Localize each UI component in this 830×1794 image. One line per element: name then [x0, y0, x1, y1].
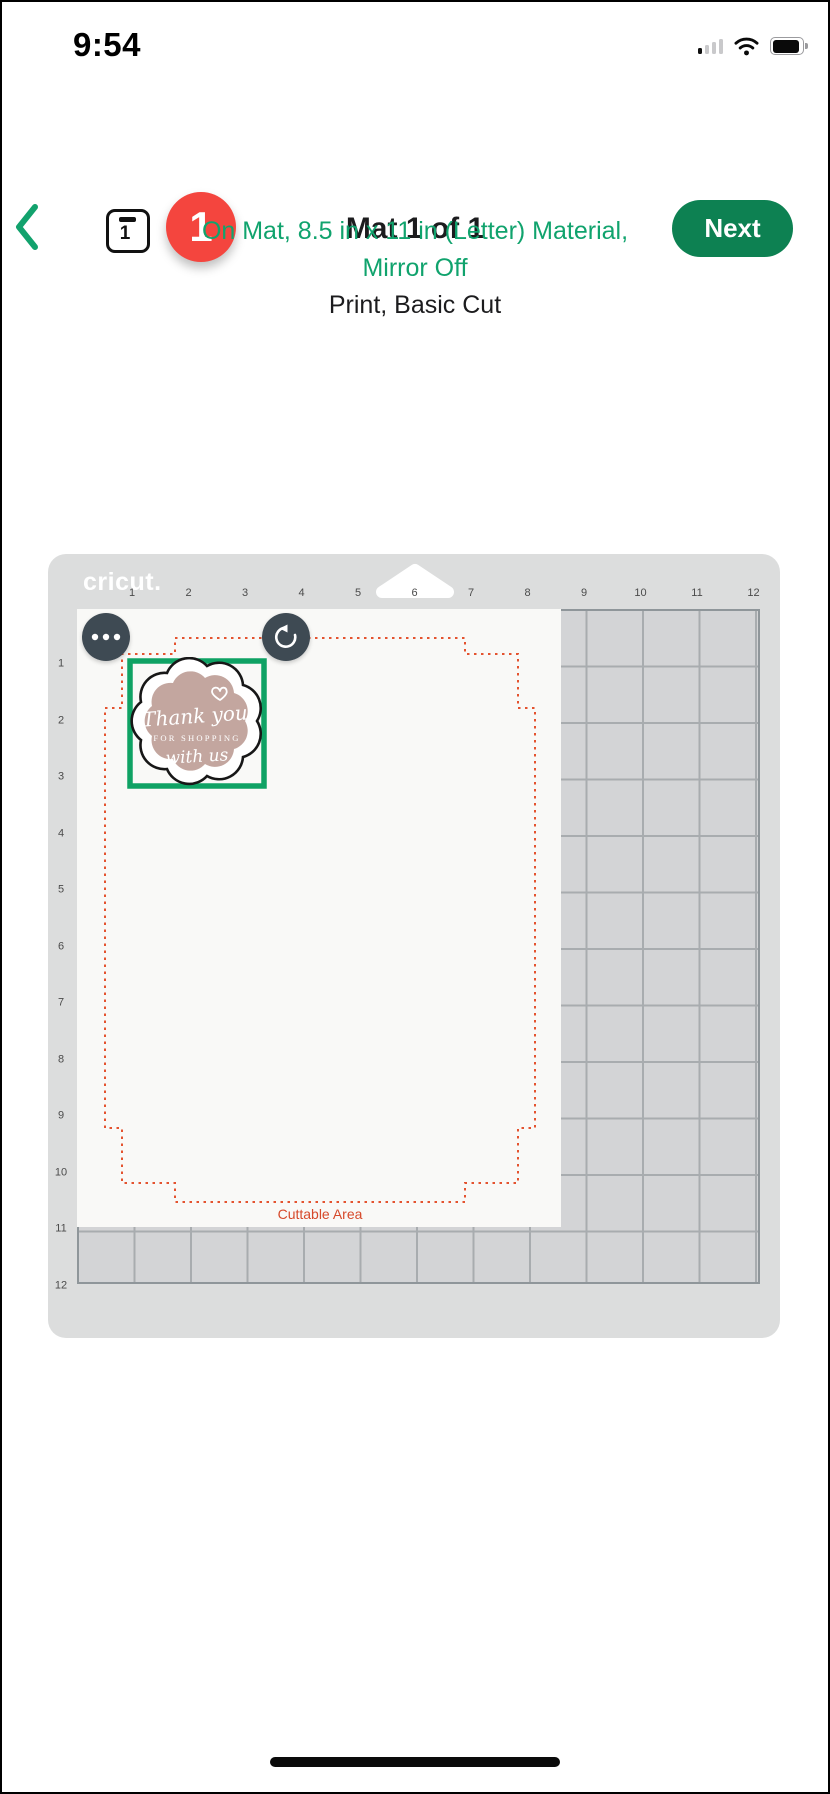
- ruler-left-number: 8: [48, 1003, 74, 1060]
- ruler-left-number: 6: [48, 890, 74, 947]
- sticker-text-3: with us: [165, 745, 229, 768]
- ruler-left-number: 11: [48, 1173, 74, 1230]
- ruler-left-number: 4: [48, 777, 74, 834]
- more-options-button[interactable]: [82, 613, 130, 661]
- ruler-top: 123456789101112: [76, 586, 754, 600]
- ruler-left: 123456789101112: [48, 608, 74, 1286]
- rotate-button[interactable]: [262, 613, 310, 661]
- ruler-top-number: 11: [641, 586, 698, 600]
- cutting-mat: cricut. 123456789101112 123456789101112 …: [48, 554, 780, 1338]
- ruler-top-number: 10: [584, 586, 641, 600]
- mirror-status: Mirror Off: [0, 250, 830, 287]
- cellular-signal-icon: [698, 38, 724, 54]
- ruler-left-number: 9: [48, 1060, 74, 1117]
- nav-header: 1 1 Mat 1 of 1 Next: [0, 90, 830, 180]
- ruler-top-number: 1: [76, 586, 133, 600]
- wifi-icon: [733, 36, 760, 56]
- cuttable-area-label: Cuttable Area: [240, 1206, 400, 1222]
- sticker-text-2: FOR SHOPPING: [153, 733, 240, 743]
- status-time: 9:54: [62, 26, 152, 64]
- ruler-left-number: 3: [48, 721, 74, 778]
- ruler-top-number: 7: [415, 586, 472, 600]
- ruler-top-number: 3: [189, 586, 246, 600]
- home-indicator[interactable]: [270, 1757, 560, 1767]
- rotate-icon: [271, 622, 301, 652]
- ruler-top-number: 4: [245, 586, 302, 600]
- operation-summary: Print, Basic Cut: [0, 287, 830, 324]
- ruler-top-number: 2: [132, 586, 189, 600]
- ruler-left-number: 2: [48, 664, 74, 721]
- mat-summary: On Mat, 8.5 in x 11 in (Letter) Material…: [0, 213, 830, 324]
- ruler-left-number: 1: [48, 608, 74, 665]
- status-icons: [698, 36, 809, 56]
- ruler-left-number: 10: [48, 1116, 74, 1173]
- ruler-left-number: 5: [48, 834, 74, 891]
- ruler-left-number: 12: [48, 1229, 74, 1286]
- ruler-top-number: 8: [471, 586, 528, 600]
- ruler-left-number: 7: [48, 947, 74, 1004]
- battery-icon: [770, 37, 808, 55]
- ellipsis-icon: [91, 632, 121, 642]
- ruler-top-number: 12: [697, 586, 754, 600]
- ruler-top-number: 5: [302, 586, 359, 600]
- ruler-top-number: 9: [528, 586, 585, 600]
- status-bar: 9:54: [0, 0, 830, 70]
- sticker-design[interactable]: Thank you FOR SHOPPING with us: [127, 657, 267, 789]
- ruler-top-number: 6: [358, 586, 415, 600]
- material-line-1: On Mat, 8.5 in x 11 in (Letter) Material…: [0, 213, 830, 250]
